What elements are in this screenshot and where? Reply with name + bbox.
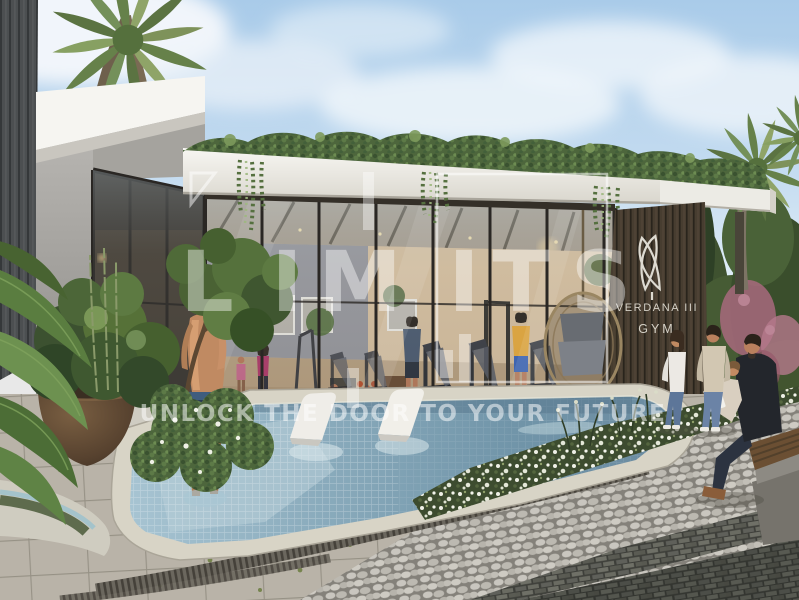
watermark-letter: L: [180, 233, 234, 331]
watermark-letter: M: [318, 233, 402, 331]
property-render-image: VERDANA III GYM: [0, 0, 799, 600]
watermark-letter: I: [448, 233, 479, 331]
scene-canvas: VERDANA III GYM: [0, 0, 799, 600]
watermark-letter: T: [492, 233, 549, 331]
watermark-letter: S: [571, 233, 632, 331]
corner-column: [735, 212, 744, 294]
father-shirt: [736, 353, 782, 442]
watermark-letter: I: [271, 233, 302, 331]
gym-sign-type: GYM: [638, 322, 675, 336]
dark-slat-fin-wall: [0, 0, 38, 380]
watermark-tagline: UNLOCK THE DOOR TO YOUR FUTURE: [140, 401, 667, 427]
